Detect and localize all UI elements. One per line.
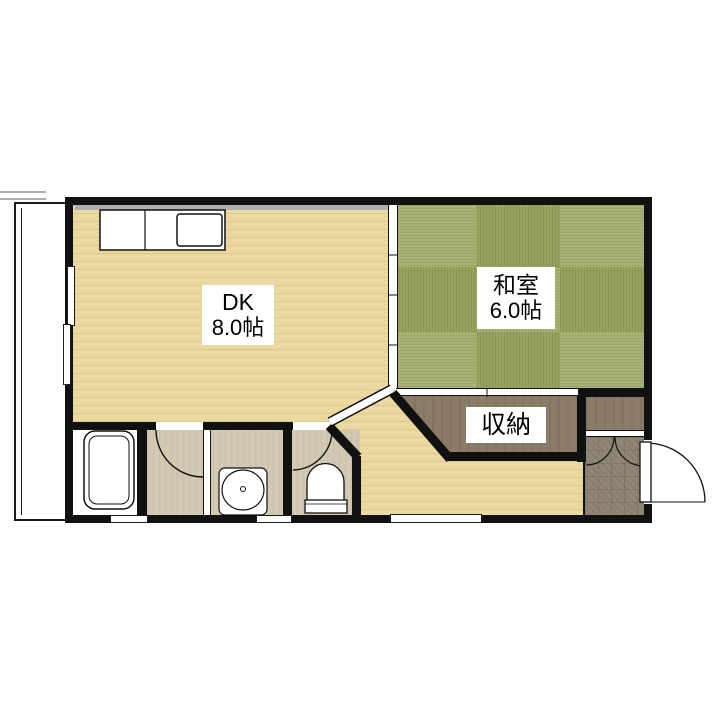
tatami-mat bbox=[396, 267, 477, 332]
sliding-door-dk-washitsu bbox=[388, 205, 398, 390]
bathroom-floor bbox=[73, 430, 137, 515]
wall-shadow bbox=[75, 205, 388, 210]
tatami-mat bbox=[396, 205, 477, 267]
washitsu-room-size: 6.0帖 bbox=[490, 299, 543, 324]
shoe-cabinet-door-track bbox=[586, 430, 644, 437]
wall-bath-washroom bbox=[137, 430, 147, 515]
wall-storage-genkan bbox=[577, 388, 586, 462]
neighbor-divider-line bbox=[0, 191, 46, 193]
exterior-wall-bottom bbox=[65, 515, 652, 523]
window-bottom-bath bbox=[110, 515, 148, 523]
wall-storage-bottom bbox=[448, 452, 578, 461]
window-pane-left-lower bbox=[63, 324, 71, 385]
tatami-mat bbox=[477, 332, 560, 388]
window-bottom-hallway bbox=[390, 514, 482, 523]
neighbor-divider-line bbox=[0, 198, 46, 200]
window-bottom-washbasin bbox=[256, 515, 292, 523]
tatami-mat bbox=[560, 332, 644, 388]
window-pane-left-upper bbox=[67, 266, 75, 326]
washitsu-room-label: 和室 6.0帖 bbox=[477, 267, 555, 329]
sliding-door-washitsu-storage bbox=[396, 388, 578, 396]
genkan-step-line bbox=[583, 462, 585, 515]
toilet-door-opening bbox=[293, 422, 332, 430]
entrance-door-opening bbox=[644, 440, 652, 504]
washitsu-room-name: 和室 bbox=[493, 273, 539, 299]
partition-washroom-washbasin bbox=[203, 430, 211, 515]
tatami-mat bbox=[396, 332, 477, 388]
tatami-mat bbox=[560, 267, 644, 332]
shoe-cabinet bbox=[586, 397, 644, 430]
storage-name: 収納 bbox=[481, 411, 531, 439]
floor-plan: DK 8.0帖 和室 6.0帖 収納 bbox=[0, 0, 720, 720]
wall-toilet-hallway bbox=[352, 456, 361, 515]
washroom-door-opening bbox=[156, 422, 203, 430]
tatami-mat bbox=[560, 205, 644, 267]
dk-room-size: 8.0帖 bbox=[212, 316, 265, 341]
storage-label: 収納 bbox=[466, 407, 546, 443]
genkan-tile-floor bbox=[585, 437, 644, 515]
wall-washitsu-shoecabinet bbox=[578, 388, 644, 397]
dk-room-label: DK 8.0帖 bbox=[202, 285, 274, 345]
exterior-wall-top bbox=[65, 197, 652, 205]
wall-washbasin-toilet bbox=[283, 430, 292, 515]
washroom-toilet-floor bbox=[147, 430, 360, 515]
balcony-inner-line bbox=[21, 208, 22, 515]
dk-room-name: DK bbox=[222, 290, 254, 316]
tatami-mat bbox=[477, 205, 560, 267]
